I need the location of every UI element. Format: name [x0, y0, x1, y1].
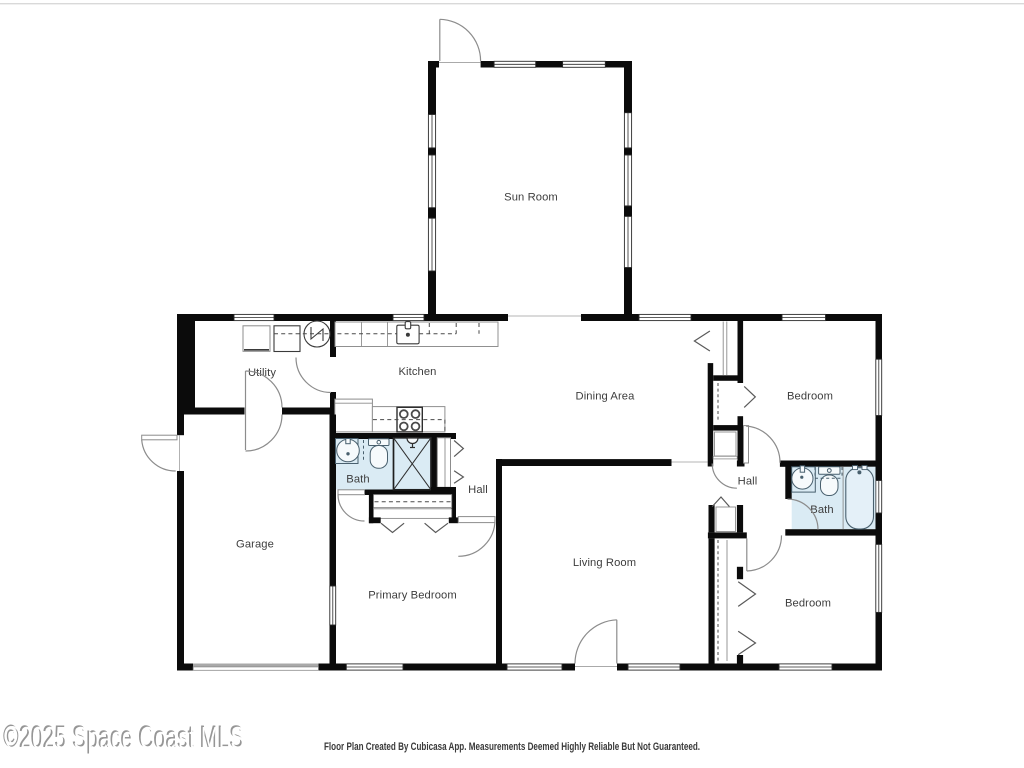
svg-text:Hall: Hall: [738, 476, 758, 488]
svg-text:Bath: Bath: [346, 474, 369, 486]
svg-text:Sun Room: Sun Room: [504, 192, 558, 204]
svg-text:Bedroom: Bedroom: [785, 598, 831, 610]
svg-text:Garage: Garage: [236, 539, 274, 551]
svg-text:Primary Bedroom: Primary Bedroom: [368, 590, 457, 602]
svg-text:©2025 Space Coast MLS: ©2025 Space Coast MLS: [5, 720, 245, 756]
svg-text:Dining Area: Dining Area: [576, 391, 636, 403]
svg-text:Hall: Hall: [468, 484, 488, 496]
svg-text:Utility: Utility: [248, 367, 276, 379]
svg-text:Floor Plan Created By Cubicasa: Floor Plan Created By Cubicasa App. Meas…: [324, 741, 700, 753]
svg-text:Bedroom: Bedroom: [787, 391, 833, 403]
svg-text:Kitchen: Kitchen: [398, 366, 436, 378]
svg-text:Living Room: Living Room: [573, 557, 636, 569]
